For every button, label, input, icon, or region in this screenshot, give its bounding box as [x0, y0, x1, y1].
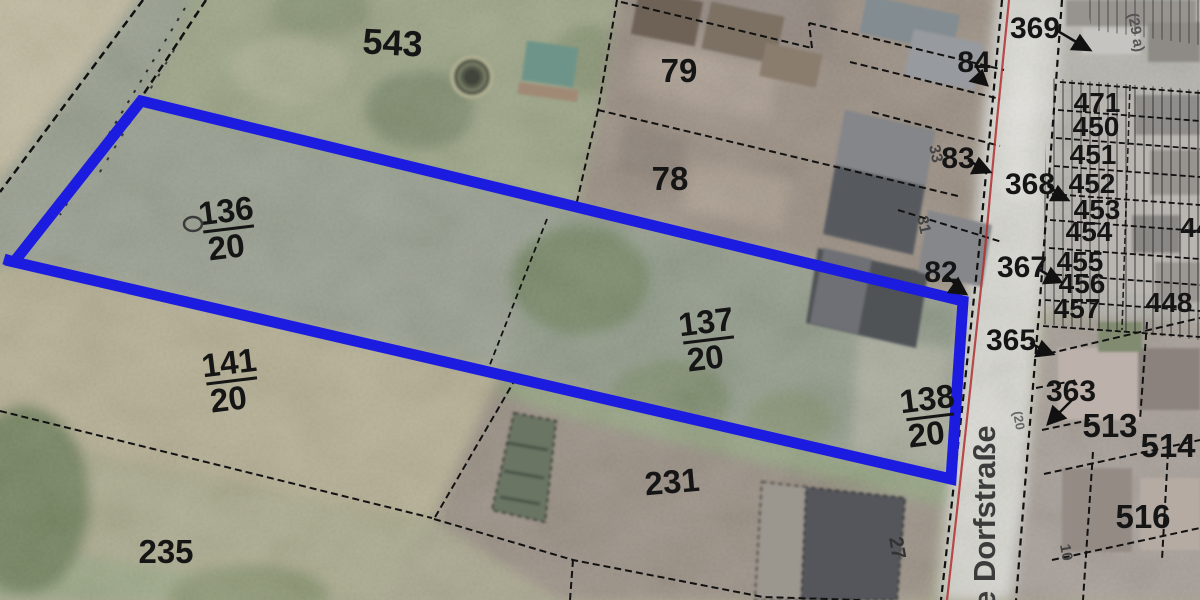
svg-text:e Dorfstraße: e Dorfstraße: [967, 425, 1002, 600]
svg-text:454: 454: [1066, 216, 1113, 247]
svg-text:231: 231: [643, 461, 701, 503]
svg-text:450: 450: [1073, 111, 1120, 142]
svg-text:82: 82: [924, 256, 957, 289]
svg-text:83: 83: [941, 142, 974, 175]
svg-text:457: 457: [1054, 293, 1101, 324]
svg-text:20: 20: [906, 413, 947, 454]
svg-text:31: 31: [913, 214, 933, 235]
svg-text:33: 33: [925, 143, 945, 164]
svg-text:369: 369: [1010, 12, 1060, 45]
svg-text:10: 10: [1056, 543, 1076, 562]
svg-text:363: 363: [1046, 375, 1096, 408]
svg-text:79: 79: [661, 52, 698, 89]
svg-text:516: 516: [1115, 498, 1170, 535]
svg-text:84: 84: [957, 46, 991, 79]
svg-text:367: 367: [997, 251, 1047, 284]
svg-text:78: 78: [652, 160, 689, 197]
svg-text:20: 20: [206, 226, 247, 267]
svg-text:451: 451: [1070, 139, 1117, 170]
svg-text:514: 514: [1140, 427, 1196, 464]
svg-text:543: 543: [362, 20, 424, 64]
svg-text:44: 44: [1180, 212, 1200, 243]
svg-text:27: 27: [884, 535, 910, 561]
svg-text:235: 235: [138, 533, 193, 570]
svg-text:20: 20: [685, 337, 726, 378]
svg-text:20: 20: [208, 378, 249, 419]
svg-text:368: 368: [1005, 168, 1055, 201]
svg-text:365: 365: [986, 324, 1036, 357]
svg-text:513: 513: [1082, 407, 1137, 444]
svg-text:448: 448: [1146, 287, 1193, 318]
